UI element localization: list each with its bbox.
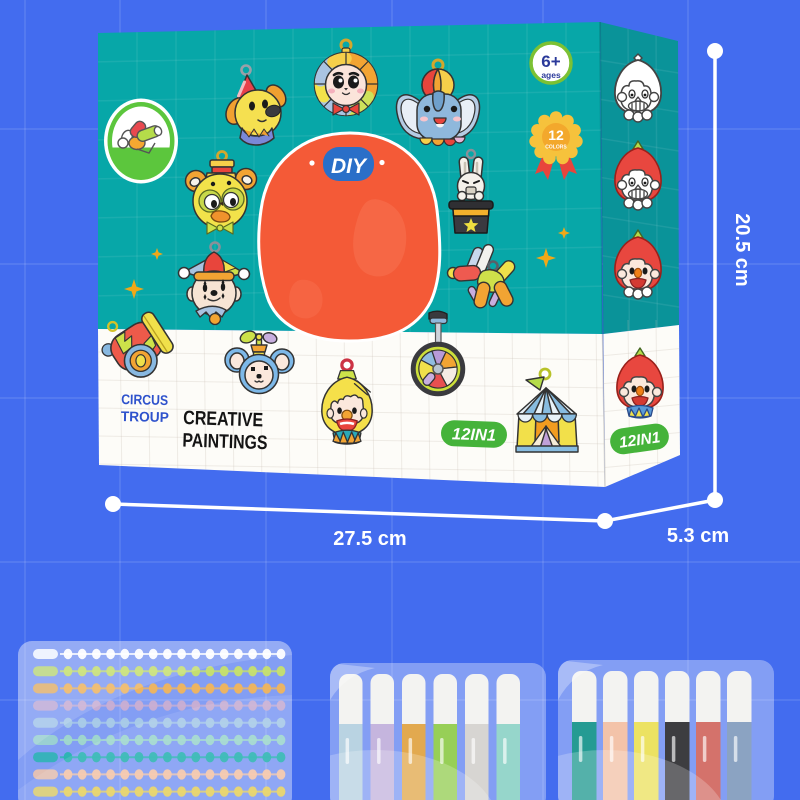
svg-text:CREATIVE: CREATIVE	[183, 407, 264, 432]
svg-text:12IN1: 12IN1	[452, 425, 497, 445]
svg-text:27.5 cm: 27.5 cm	[333, 528, 406, 550]
svg-text:COLORS: COLORS	[545, 145, 567, 151]
svg-text:20.5 cm: 20.5 cm	[731, 213, 753, 286]
svg-text:DIY: DIY	[331, 155, 368, 178]
svg-text:5.3 cm: 5.3 cm	[667, 525, 729, 547]
svg-text:TROUP: TROUP	[121, 408, 169, 425]
svg-text:12: 12	[548, 127, 564, 143]
svg-text:PAINTINGS: PAINTINGS	[182, 429, 268, 454]
svg-text:ages: ages	[541, 70, 561, 80]
svg-text:6+: 6+	[541, 52, 560, 71]
svg-text:CIRCUS: CIRCUS	[121, 391, 168, 408]
